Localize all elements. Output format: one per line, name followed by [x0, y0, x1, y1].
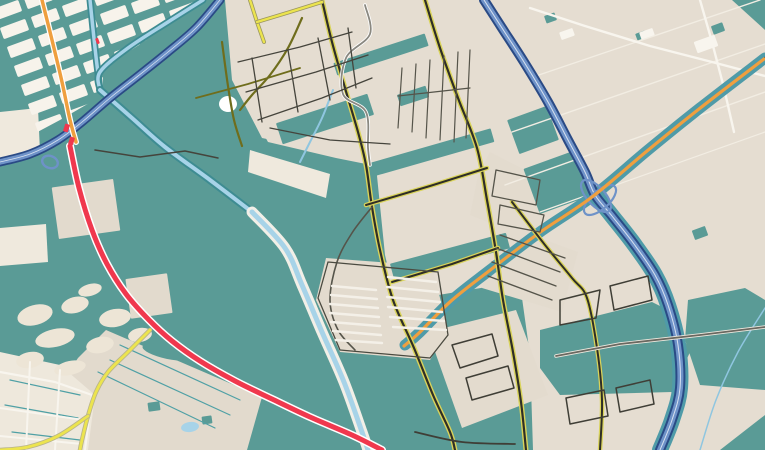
map-ellipse [219, 96, 237, 112]
town-beige [225, 0, 540, 155]
east-of-river-wedge [685, 288, 765, 390]
map-svg[interactable] [0, 0, 765, 450]
cream-left [0, 224, 48, 266]
map-canvas[interactable] [0, 0, 765, 450]
map-rect [147, 401, 160, 412]
map-rect [201, 415, 212, 424]
